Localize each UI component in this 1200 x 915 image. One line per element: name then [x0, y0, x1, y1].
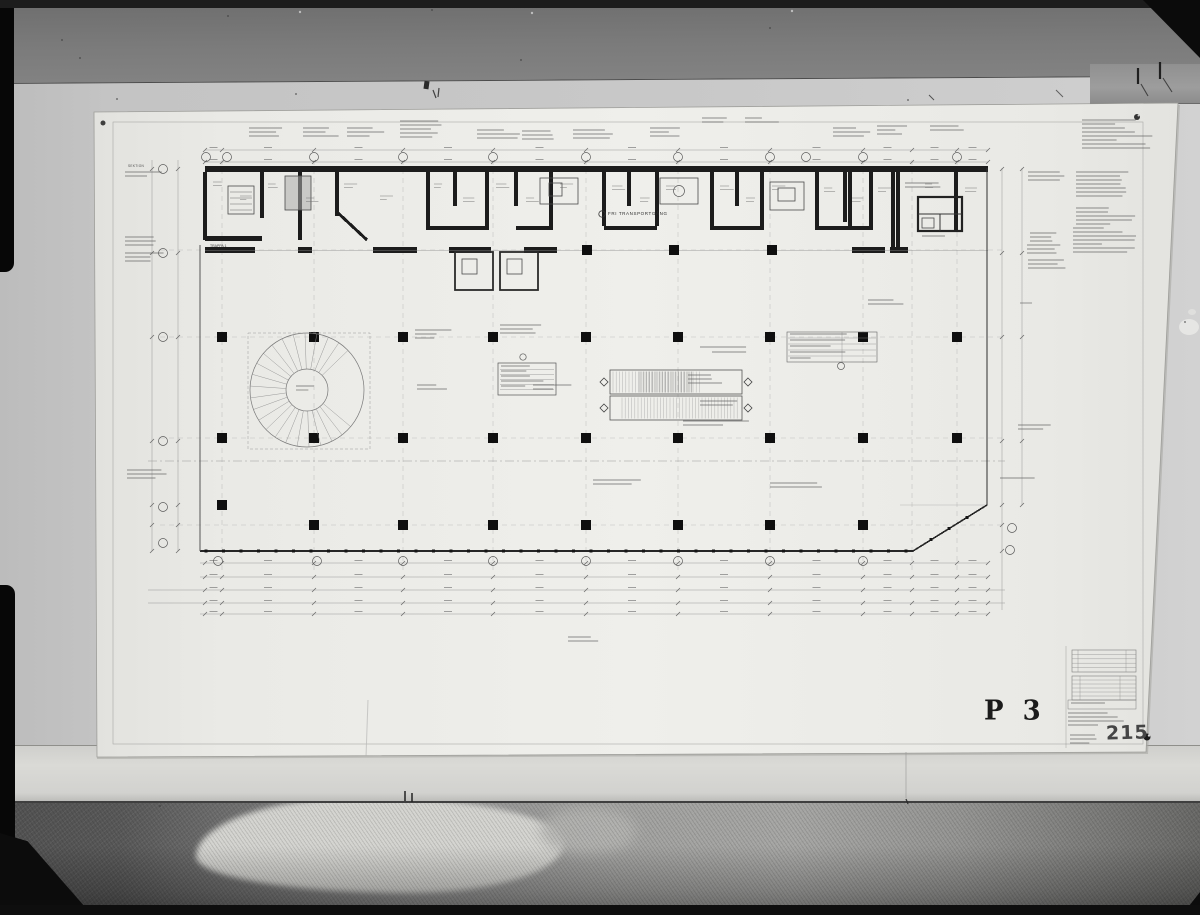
shelf-ledge	[0, 745, 1200, 803]
film-edge-top-left	[0, 0, 14, 272]
carpet-shadow	[0, 803, 1200, 915]
photo-top-border	[0, 0, 1200, 8]
wall-upper-band	[0, 0, 1200, 84]
photo-bottom-border	[0, 905, 1200, 915]
photograph-of-floor-plan: P 3 215 FRI TRANSPORTGÅNG TRAPPA 1 SEKTI…	[0, 0, 1200, 915]
wall-batten-strip	[1090, 64, 1200, 104]
carpet-floor	[0, 803, 1200, 915]
